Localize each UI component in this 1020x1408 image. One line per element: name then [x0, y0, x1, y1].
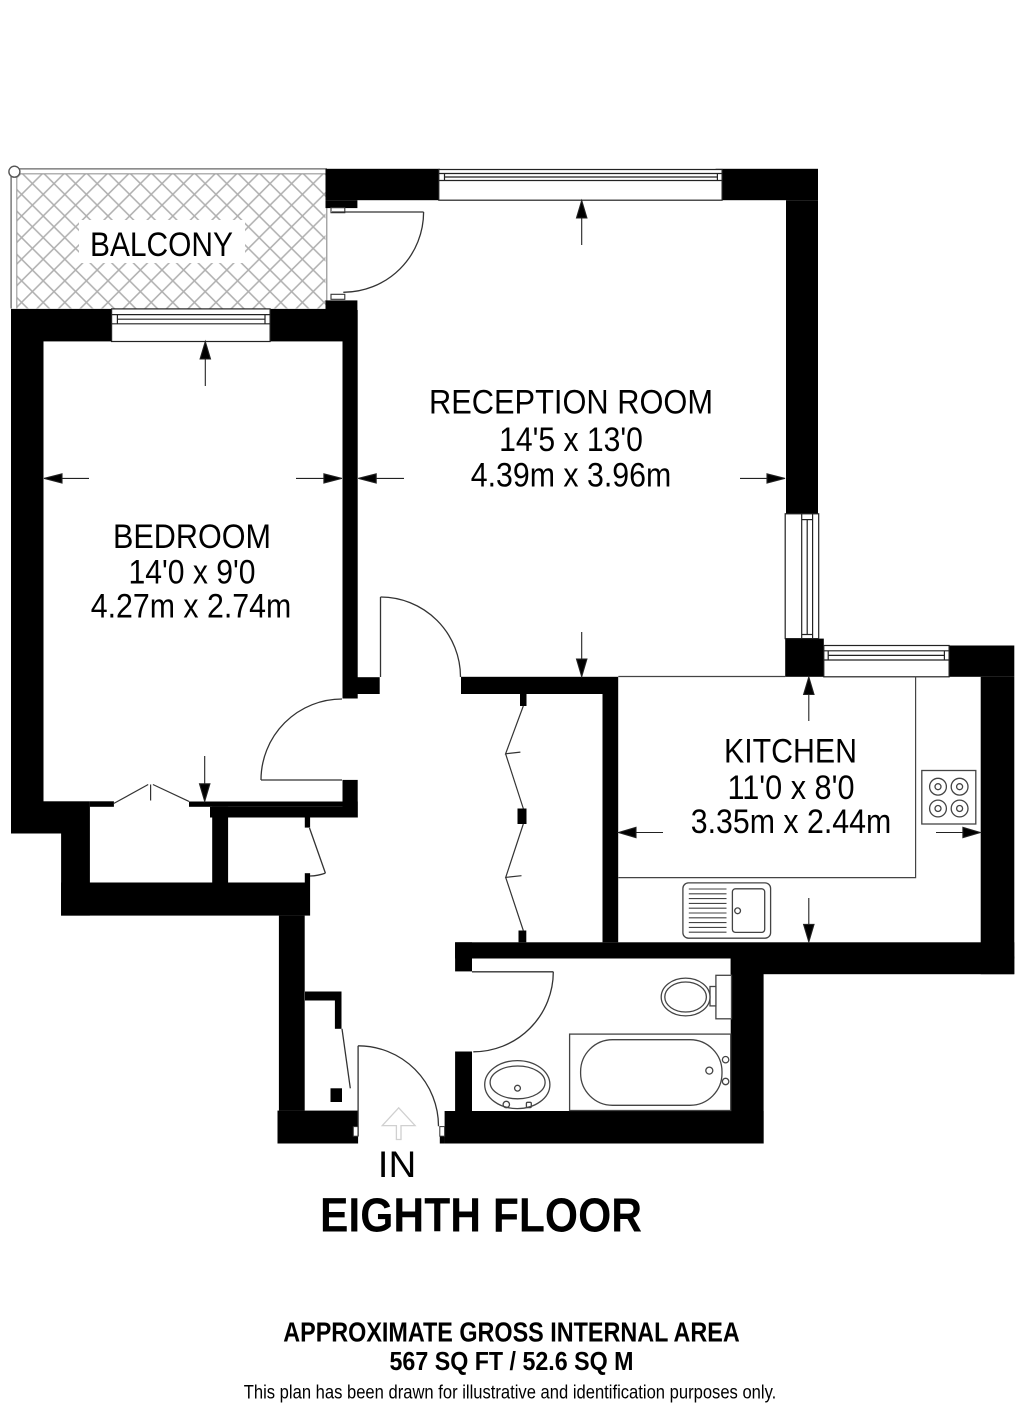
svg-text:This plan has been drawn for i: This plan has been drawn for illustrativ…: [244, 1383, 777, 1404]
svg-text:EIGHTH FLOOR: EIGHTH FLOOR: [320, 1190, 642, 1243]
svg-text:BEDROOM: BEDROOM: [113, 518, 271, 556]
svg-text:4.39m x 3.96m: 4.39m x 3.96m: [471, 457, 672, 495]
svg-text:KITCHEN: KITCHEN: [724, 733, 857, 771]
svg-text:3.35m x 2.44m: 3.35m x 2.44m: [691, 803, 892, 841]
svg-text:IN: IN: [378, 1144, 417, 1185]
svg-text:BALCONY: BALCONY: [90, 226, 233, 264]
svg-text:4.27m x 2.74m: 4.27m x 2.74m: [91, 588, 292, 626]
svg-text:567 SQ FT / 52.6 SQ M: 567 SQ FT / 52.6 SQ M: [390, 1346, 634, 1376]
svg-text:RECEPTION ROOM: RECEPTION ROOM: [429, 384, 713, 422]
svg-text:11'0 x 8'0: 11'0 x 8'0: [728, 769, 855, 807]
svg-text:14'5 x 13'0: 14'5 x 13'0: [499, 421, 643, 459]
svg-text:APPROXIMATE GROSS INTERNAL ARE: APPROXIMATE GROSS INTERNAL AREA: [283, 1316, 740, 1347]
svg-text:14'0 x 9'0: 14'0 x 9'0: [129, 554, 256, 592]
